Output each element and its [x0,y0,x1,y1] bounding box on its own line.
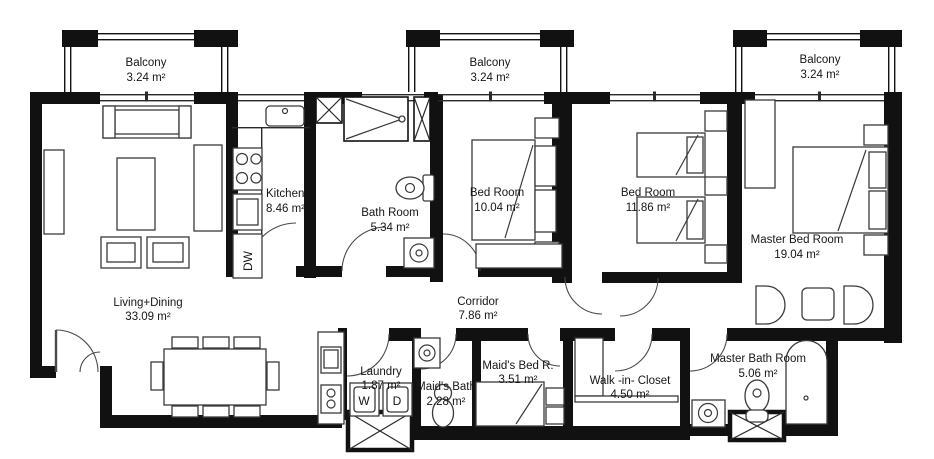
shower [344,97,408,141]
vanity-chair [756,286,785,324]
wardrobe [745,100,775,188]
bath-sink [404,238,434,268]
svg-text:Living+Dining: Living+Dining [113,297,182,309]
room-label-bathroom: Bath Room 5.34 m² [361,207,419,234]
svg-text:Balcony: Balcony [470,57,511,69]
toilet [745,380,769,422]
dryer-label: D [393,394,402,408]
svg-text:5.06 m²: 5.06 m² [739,368,778,380]
shaft-icon [348,412,412,450]
svg-text:1.87 m²: 1.87 m² [362,380,401,392]
shaft-icon [414,97,430,141]
svg-text:Maid's Bed R.: Maid's Bed R. [482,360,553,372]
svg-text:3.51 m²: 3.51 m² [499,374,538,386]
shaft-icon [316,97,342,123]
tv-console [44,150,64,234]
svg-text:Bath Room: Bath Room [361,207,419,219]
dining-table [151,337,279,417]
svg-text:Laundry: Laundry [360,366,402,378]
svg-text:4.50 m²: 4.50 m² [611,389,650,401]
maid-bed [476,382,564,426]
svg-text:Kitchen: Kitchen [266,188,304,200]
svg-text:Maid's Bath: Maid's Bath [416,381,476,393]
svg-text:Balcony: Balcony [126,57,167,69]
kitchenette-counter [318,332,344,424]
svg-text:19.04 m²: 19.04 m² [774,249,820,261]
room-label-kitchen: Kitchen 8.46 m² [266,188,305,215]
vanity-chair [844,286,873,324]
floor-plan-page: DW [0,0,934,459]
room-label-balcony-right: Balcony 3.24 m² [800,54,841,81]
room-label-balcony-left: Balcony 3.24 m² [126,57,167,84]
dishwasher-label: DW [241,250,255,271]
vanity-table [802,288,834,320]
coffee-table [117,158,155,230]
sofa [103,106,191,138]
svg-text:Corridor: Corridor [457,296,499,308]
svg-text:5.34 m²: 5.34 m² [371,222,410,234]
svg-text:Walk -in- Closet: Walk -in- Closet [590,375,672,387]
master-bath-sink [692,400,725,427]
svg-text:11.86 m²: 11.86 m² [626,202,671,214]
room-label-living-dining: Living+Dining 33.09 m² [113,297,182,323]
armchair [147,237,189,268]
nightstand [705,177,727,195]
svg-text:2.28 m²: 2.28 m² [427,396,466,408]
svg-text:33.09 m²: 33.09 m² [125,311,171,323]
svg-text:Balcony: Balcony [800,54,841,66]
room-label-balcony-middle: Balcony 3.24 m² [470,57,511,84]
svg-text:8.46 m²: 8.46 m² [266,203,305,215]
svg-text:Master Bed Room: Master Bed Room [751,234,844,246]
svg-text:10.04 m²: 10.04 m² [474,202,520,214]
toilet [396,175,434,201]
svg-text:Bed Room: Bed Room [470,187,524,199]
side-console [194,145,222,231]
wardrobe [476,244,562,268]
armchair [101,237,141,268]
washer-label: W [358,394,370,408]
svg-text:Bed Room: Bed Room [621,187,675,199]
closet-shelf [575,338,603,396]
twin-bed [637,133,705,177]
nightstand [705,245,727,263]
svg-text:7.86 m²: 7.86 m² [459,310,498,322]
room-label-laundry: Laundry 1.87 m² [360,366,402,392]
oven [233,194,262,230]
nightstand [705,111,727,131]
stove [233,148,262,190]
dishwasher: DW [233,234,262,278]
svg-text:3.24 m²: 3.24 m² [801,69,840,81]
maid-bath-sink [414,338,440,368]
svg-text:3.24 m²: 3.24 m² [471,72,510,84]
room-label-corridor: Corridor 7.86 m² [457,296,499,322]
svg-text:Master Bath Room: Master Bath Room [710,353,806,365]
floor-plan-svg: DW [0,0,934,459]
room-label-master-bedroom: Master Bed Room 19.04 m² [751,234,844,261]
svg-text:3.24 m²: 3.24 m² [127,72,166,84]
